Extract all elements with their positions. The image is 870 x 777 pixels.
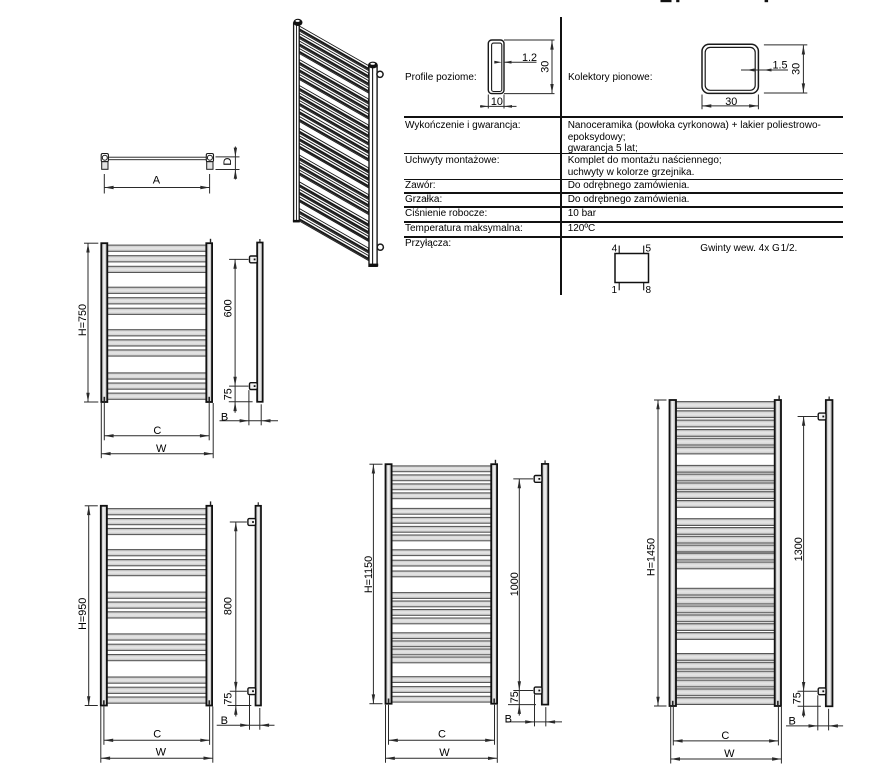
svg-text:C: C xyxy=(153,425,161,437)
svg-text:H=750: H=750 xyxy=(77,304,89,336)
svg-text:H=1150: H=1150 xyxy=(363,556,375,593)
svg-text:5: 5 xyxy=(646,243,652,254)
svg-text:75: 75 xyxy=(223,693,235,705)
svg-text:B: B xyxy=(789,715,796,727)
svg-text:4: 4 xyxy=(612,243,618,254)
svg-text:30: 30 xyxy=(539,61,551,73)
svg-text:B: B xyxy=(221,412,228,424)
svg-text:75: 75 xyxy=(791,692,803,704)
svg-text:H=1450: H=1450 xyxy=(646,538,658,576)
svg-text:1.5: 1.5 xyxy=(772,60,787,72)
svg-text:600: 600 xyxy=(222,299,234,317)
svg-text:30: 30 xyxy=(791,63,803,75)
svg-text:800: 800 xyxy=(223,597,235,615)
svg-text:C: C xyxy=(438,729,446,741)
svg-text:1300: 1300 xyxy=(793,537,805,561)
svg-text:75: 75 xyxy=(222,388,234,400)
svg-text:1.2: 1.2 xyxy=(522,52,537,64)
svg-text:D: D xyxy=(222,158,234,166)
svg-text:30: 30 xyxy=(725,96,737,108)
svg-text:W: W xyxy=(156,746,167,758)
svg-text:10: 10 xyxy=(491,96,503,108)
svg-text:8: 8 xyxy=(646,285,652,296)
svg-text:B: B xyxy=(221,715,228,727)
svg-text:W: W xyxy=(439,747,450,759)
svg-text:B: B xyxy=(505,713,512,725)
svg-text:W: W xyxy=(724,748,735,760)
svg-text:1: 1 xyxy=(611,285,617,296)
svg-text:A: A xyxy=(153,175,161,187)
svg-text:75: 75 xyxy=(509,691,521,703)
svg-text:H=950: H=950 xyxy=(77,598,89,630)
svg-text:C: C xyxy=(721,730,729,742)
svg-text:1000: 1000 xyxy=(509,572,521,596)
svg-text:C: C xyxy=(153,729,161,741)
svg-text:W: W xyxy=(156,443,167,455)
